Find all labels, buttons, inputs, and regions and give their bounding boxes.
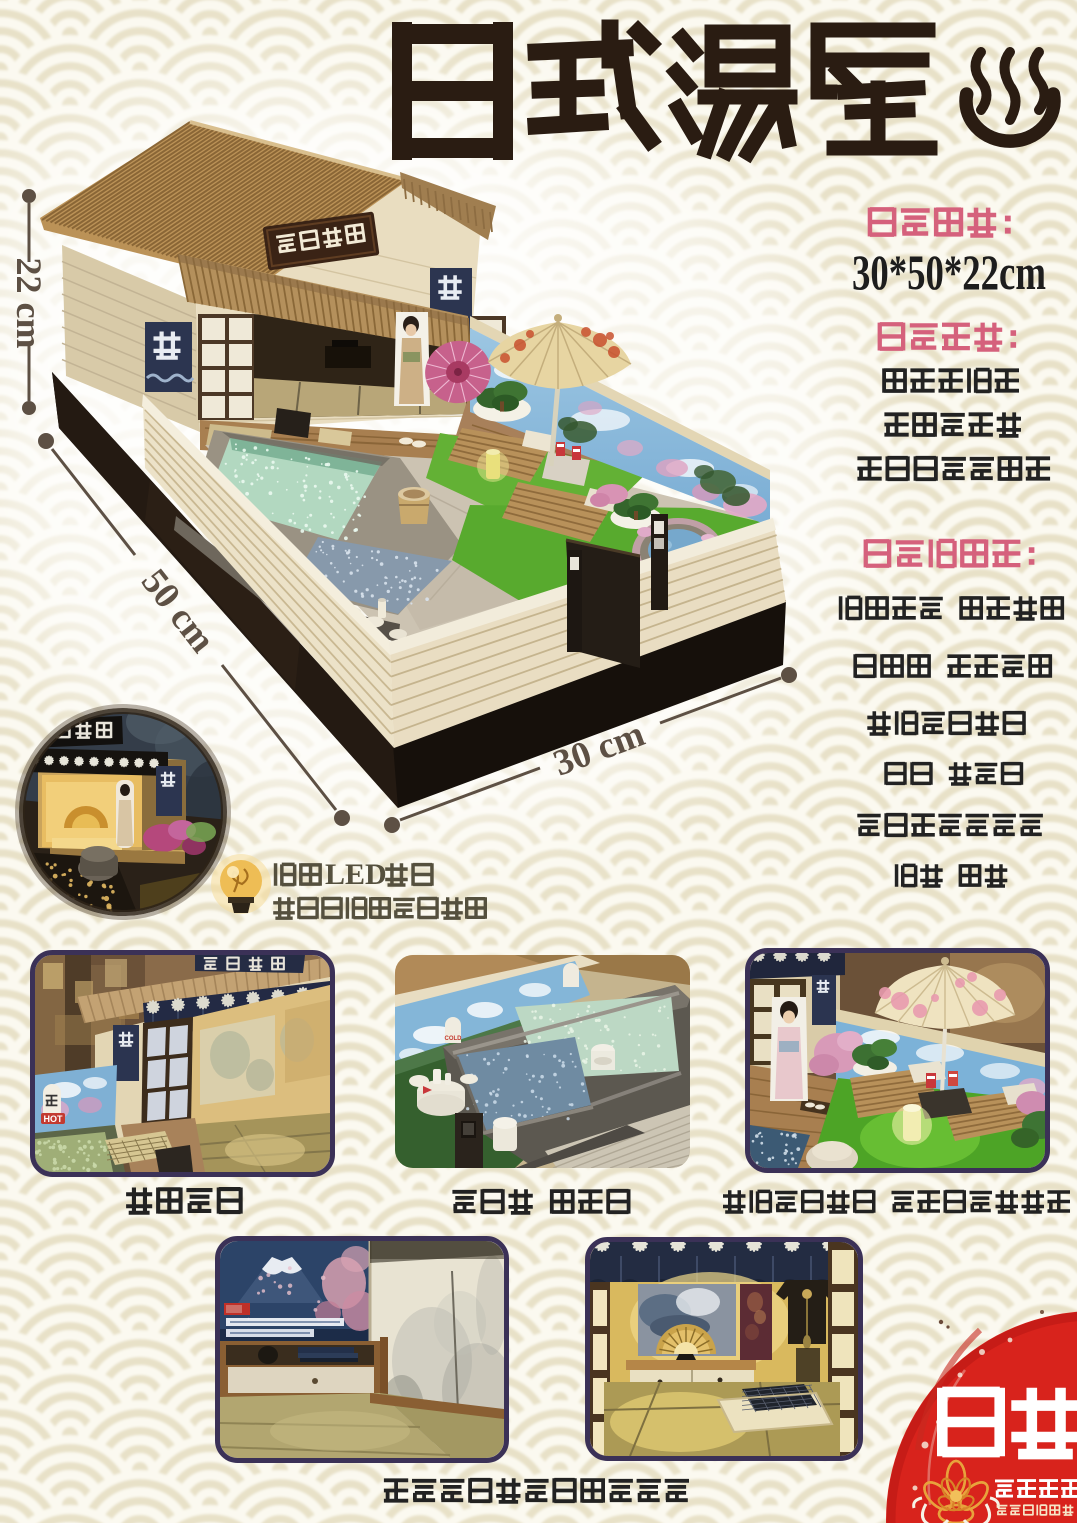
svg-text:COLD: COLD xyxy=(445,1036,463,1042)
svg-text:HOT: HOT xyxy=(44,1114,64,1124)
svg-text:LED: LED xyxy=(325,858,387,891)
svg-text:22 cm: 22 cm xyxy=(9,258,49,349)
svg-text:30*50*22cm: 30*50*22cm xyxy=(852,244,1046,300)
